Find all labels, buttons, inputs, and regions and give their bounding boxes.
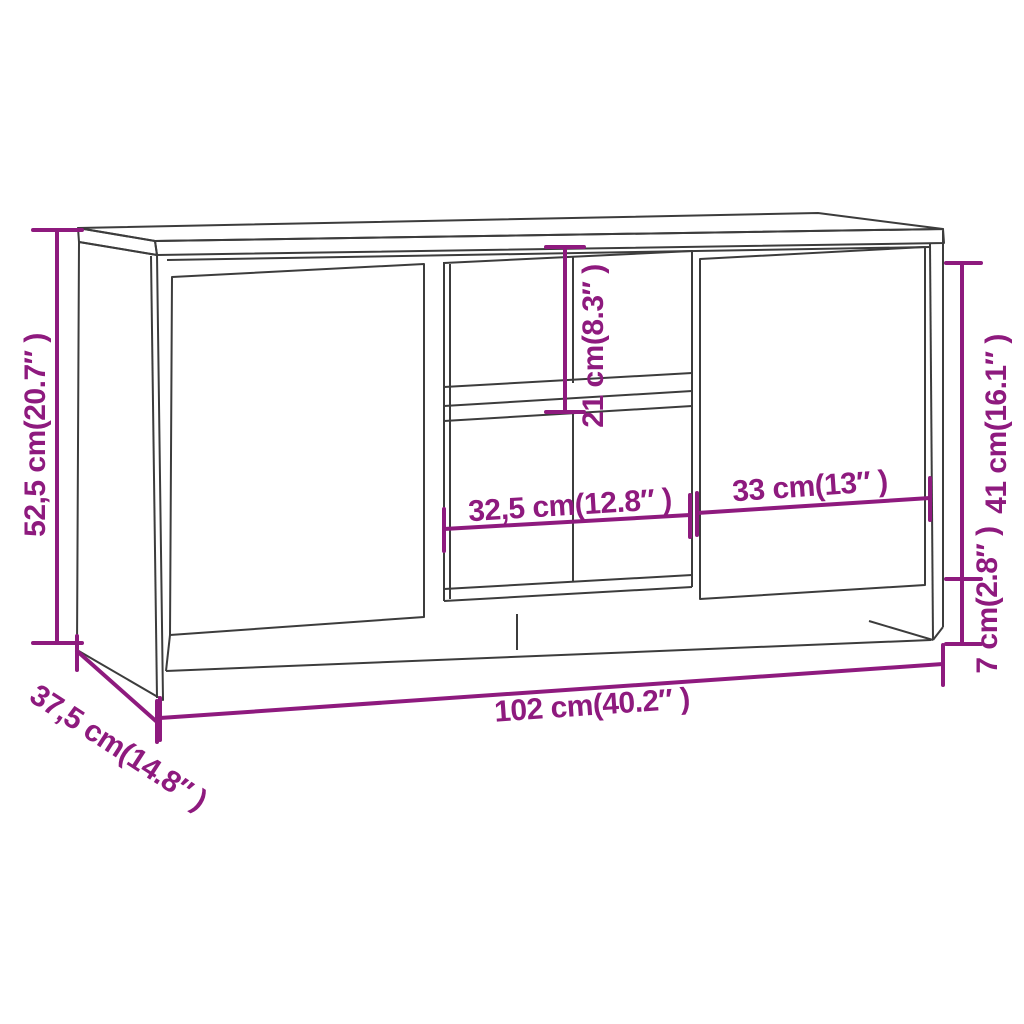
top-panel-face [78,213,943,241]
plinth-bottom-edge [166,640,931,671]
shelf-back-edge [444,373,692,387]
top-panel-front-edge [155,229,944,255]
right-panel-bottom-diagonal [869,621,933,640]
left-side-panel [77,242,163,700]
right-bottom-edge [933,627,943,640]
dimension-label-shelf-opening-height: 21 cm(8.3″ ) [577,264,611,427]
dimension-label-door-height: 41 cm(16.1″ ) [980,334,1014,514]
dimension-diagram-page: 52,5 cm(20.7″ ) 37,5 cm(14.8″ ) 102 cm(4… [0,0,1024,1024]
dimension-label-overall-height: 52,5 cm(20.7″ ) [19,333,53,537]
floor-front-edge [444,587,692,601]
cabinet-outline [77,213,944,700]
right-door [700,247,925,599]
shelf-front-top-edge [444,391,692,406]
floor-back-edge [444,575,692,589]
plinth-left-edge [166,635,170,671]
left-door [170,264,424,635]
left-side-panel-inner-edge [151,256,157,698]
right-front-corner-edge [930,244,933,640]
dimension-label-plinth-height: 7 cm(2.8″ ) [971,526,1005,673]
top-panel-left-edge [78,228,157,255]
